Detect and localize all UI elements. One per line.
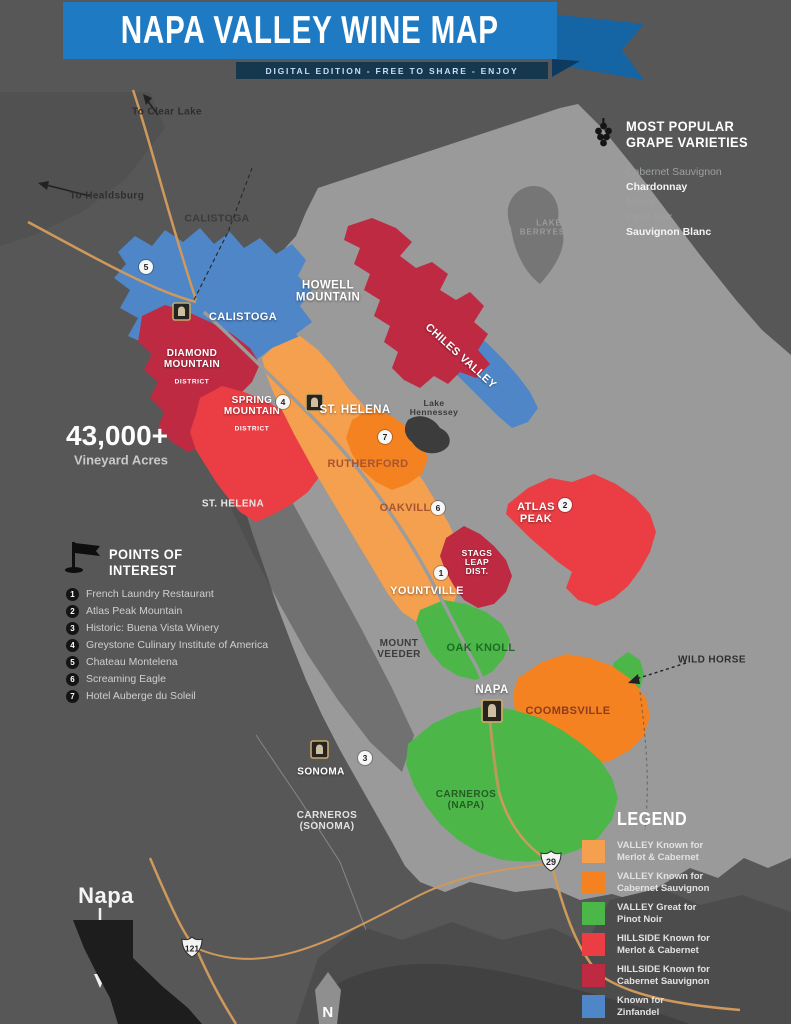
poi-item: 1 French Laundry Restaurant [66, 587, 214, 601]
poi-name: Greystone Culinary Institute of America [86, 639, 268, 651]
label-diamond-district: DISTRICT [175, 379, 210, 386]
poi-panel-title: POINTS OF INTEREST [109, 546, 183, 578]
subtitle-text: DIGITAL EDITION - FREE TO SHARE - ENJOY [266, 66, 519, 76]
town-icon-sonoma [311, 741, 328, 758]
label-spring-district: DISTRICT [235, 426, 270, 433]
label-st-helena-mtn: ST. HELENA [202, 500, 264, 511]
label-st-helena-town: ST. HELENA [319, 404, 390, 416]
map-marker-6: 6 [431, 501, 445, 515]
label-diamond-mountain: DIAMOND MOUNTAIN [164, 349, 220, 371]
legend-label: Known for Zinfandel [617, 995, 664, 1018]
map-marker-7: 7 [378, 430, 392, 444]
legend-swatch [582, 840, 605, 863]
map-marker-5: 5 [139, 260, 153, 274]
label-highway-29: 29 [546, 858, 556, 868]
poi-number-badge: 7 [66, 690, 79, 703]
subtitle-bar: DIGITAL EDITION - FREE TO SHARE - ENJOY [236, 62, 548, 79]
label-rutherford: RUTHERFORD [328, 459, 409, 471]
label-to-clear-lake: To Clear Lake [132, 108, 202, 119]
poi-name: Hotel Auberge du Soleil [86, 690, 196, 702]
poi-item: 5 Chateau Montelena [66, 655, 178, 669]
legend-label: VALLEY Great for Pinot Noir [617, 902, 696, 925]
label-mount-veeder: MOUNT VEEDER [377, 639, 421, 661]
town-icon-calistoga [173, 303, 190, 320]
map-marker-4: 4 [276, 395, 290, 409]
poi-number-badge: 5 [66, 656, 79, 669]
poi-name: Chateau Montelena [86, 656, 178, 668]
label-napa-state: Napa [78, 884, 134, 908]
poi-item: 6 Screaming Eagle [66, 672, 166, 686]
label-carneros-napa: CARNEROS (NAPA) [436, 790, 496, 812]
poi-number-badge: 6 [66, 673, 79, 686]
label-carneros-sonoma: CARNEROS (SONOMA) [297, 811, 357, 833]
map-marker-1: 1 [434, 566, 448, 580]
poi-number-badge: 1 [66, 588, 79, 601]
label-lake-berryessa: LAKE BERRYESSA [520, 219, 579, 236]
legend-label: HILLSIDE Known for Cabernet Sauvignon [617, 964, 710, 987]
label-compass-n: N [322, 1005, 333, 1021]
legend-swatch [582, 933, 605, 956]
california-silhouette [73, 920, 202, 1024]
poi-name: Screaming Eagle [86, 673, 166, 685]
label-napa-town: NAPA [475, 684, 508, 696]
poi-number-badge: 3 [66, 622, 79, 635]
poi-item: 2 Atlas Peak Mountain [66, 604, 182, 618]
label-coombsville: COOMBSVILLE [525, 706, 610, 718]
map-marker-2: 2 [558, 498, 572, 512]
poi-item: 7 Hotel Auberge du Soleil [66, 689, 196, 703]
label-stags-leap: STAGS LEAP DIST. [462, 549, 493, 577]
label-lake-hennessey: Lake Hennessey [410, 399, 459, 417]
flag-icon [65, 542, 100, 573]
grape-item: Sauvignon Blanc [626, 226, 711, 238]
label-calistoga-town: CALISTOGA [209, 312, 277, 324]
poi-name: Historic: Buena Vista Winery [86, 622, 219, 634]
grape-item: Pinot Noir [626, 211, 672, 223]
legend-item: VALLEY Great for Pinot Noir [582, 902, 696, 925]
label-highway-121: 121 [185, 944, 199, 953]
legend-item: HILLSIDE Known for Merlot & Cabernet [582, 933, 710, 956]
vineyard-acres-label: Vineyard Acres [74, 453, 168, 468]
label-atlas-peak: ATLAS PEAK [517, 502, 555, 526]
legend-label: VALLEY Known for Cabernet Sauvignon [617, 871, 709, 894]
label-wild-horse: WILD HORSE [678, 656, 746, 667]
label-sonoma: SONOMA [297, 768, 344, 779]
poi-item: 4 Greystone Culinary Institute of Americ… [66, 638, 268, 652]
map-marker-3: 3 [358, 751, 372, 765]
grapes-panel-title: MOST POPULAR GRAPE VARIETIES [626, 118, 748, 150]
label-yountville: YOUNTVILLE [390, 586, 464, 598]
poi-number-badge: 2 [66, 605, 79, 618]
poi-item: 3 Historic: Buena Vista Winery [66, 621, 219, 635]
page-title: NAPA VALLEY WINE MAP [121, 9, 499, 53]
legend-label: VALLEY Known for Merlot & Cabernet [617, 840, 703, 863]
poi-name: French Laundry Restaurant [86, 588, 214, 600]
legend-swatch [582, 871, 605, 894]
label-to-healdsburg: To Healdsburg [70, 192, 144, 203]
title-banner: NAPA VALLEY WINE MAP [63, 2, 557, 59]
napa-wine-map-poster: NAPA VALLEY WINE MAP DIGITAL EDITION - F… [0, 0, 791, 1024]
label-oakville: OAKVILLE [380, 503, 439, 515]
label-oak-knoll: OAK KNOLL [447, 643, 516, 655]
legend-label: HILLSIDE Known for Merlot & Cabernet [617, 933, 710, 956]
legend-swatch [582, 964, 605, 987]
ribbon-tail [552, 14, 644, 80]
label-calistoga-area: CALISTOGA [184, 213, 249, 224]
label-spring-mountain: SPRING MOUNTAIN [224, 396, 280, 418]
legend-swatch [582, 902, 605, 925]
grape-item: Cabernet Sauvignon [626, 166, 722, 178]
legend-title: LEGEND [617, 809, 687, 830]
legend-item: VALLEY Known for Cabernet Sauvignon [582, 871, 709, 894]
grape-item: Chardonnay [626, 181, 687, 193]
legend-item: HILLSIDE Known for Cabernet Sauvignon [582, 964, 710, 987]
legend-swatch [582, 995, 605, 1018]
vineyard-acres-value: 43,000+ [66, 420, 168, 452]
legend-item: VALLEY Known for Merlot & Cabernet [582, 840, 703, 863]
legend-item: Known for Zinfandel [582, 995, 664, 1018]
town-icon-napa [482, 700, 502, 722]
poi-name: Atlas Peak Mountain [86, 605, 182, 617]
grape-item: Merlot [626, 196, 655, 208]
label-howell-mountain: HOWELL MOUNTAIN [296, 280, 360, 305]
poi-number-badge: 4 [66, 639, 79, 652]
